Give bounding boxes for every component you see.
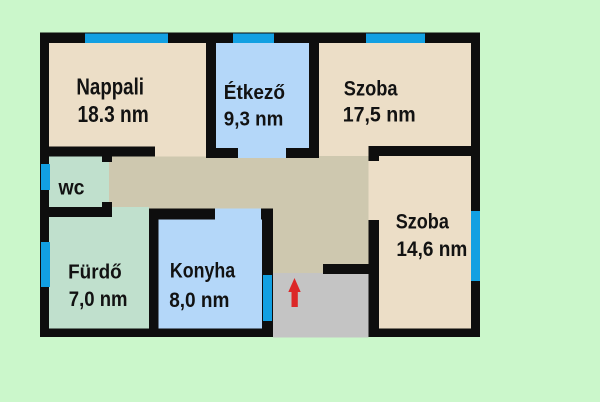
svg-text:Szoba: Szoba xyxy=(344,77,399,101)
svg-text:8,0 nm: 8,0 nm xyxy=(169,289,229,312)
svg-text:14,6 nm: 14,6 nm xyxy=(396,238,467,261)
svg-text:18.3 nm: 18.3 nm xyxy=(78,101,149,127)
svg-text:9,3 nm: 9,3 nm xyxy=(224,109,283,131)
svg-text:Fürdő: Fürdő xyxy=(68,261,122,284)
svg-text:Konyha: Konyha xyxy=(170,260,236,283)
svg-text:17,5 nm: 17,5 nm xyxy=(343,102,416,126)
svg-text:wc: wc xyxy=(58,177,85,200)
svg-text:Szoba: Szoba xyxy=(396,210,449,233)
svg-text:7,0 nm: 7,0 nm xyxy=(69,287,128,311)
svg-text:Nappali: Nappali xyxy=(76,74,144,100)
svg-text:Étkező: Étkező xyxy=(224,81,285,104)
